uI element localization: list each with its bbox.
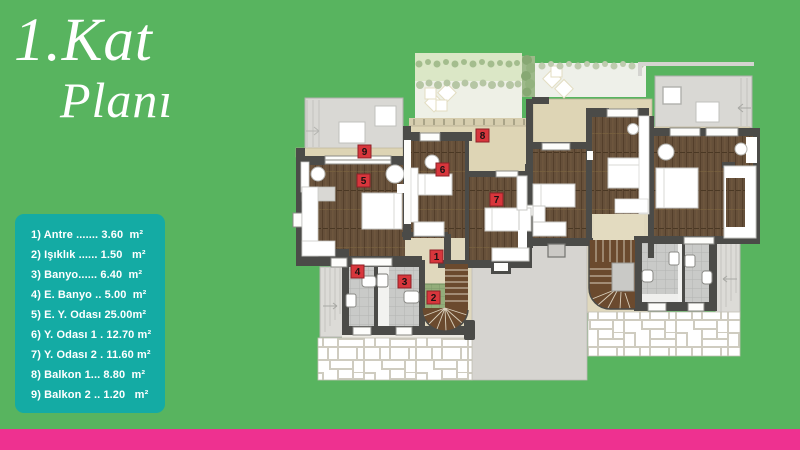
svg-text:6: 6 xyxy=(440,165,446,176)
svg-text:9: 9 xyxy=(362,147,368,158)
svg-text:8: 8 xyxy=(480,131,486,142)
svg-text:1: 1 xyxy=(434,252,440,263)
svg-text:3: 3 xyxy=(402,277,408,288)
svg-text:7: 7 xyxy=(494,195,500,206)
svg-text:5: 5 xyxy=(361,176,367,187)
svg-text:4: 4 xyxy=(355,267,361,278)
svg-text:2: 2 xyxy=(431,293,437,304)
